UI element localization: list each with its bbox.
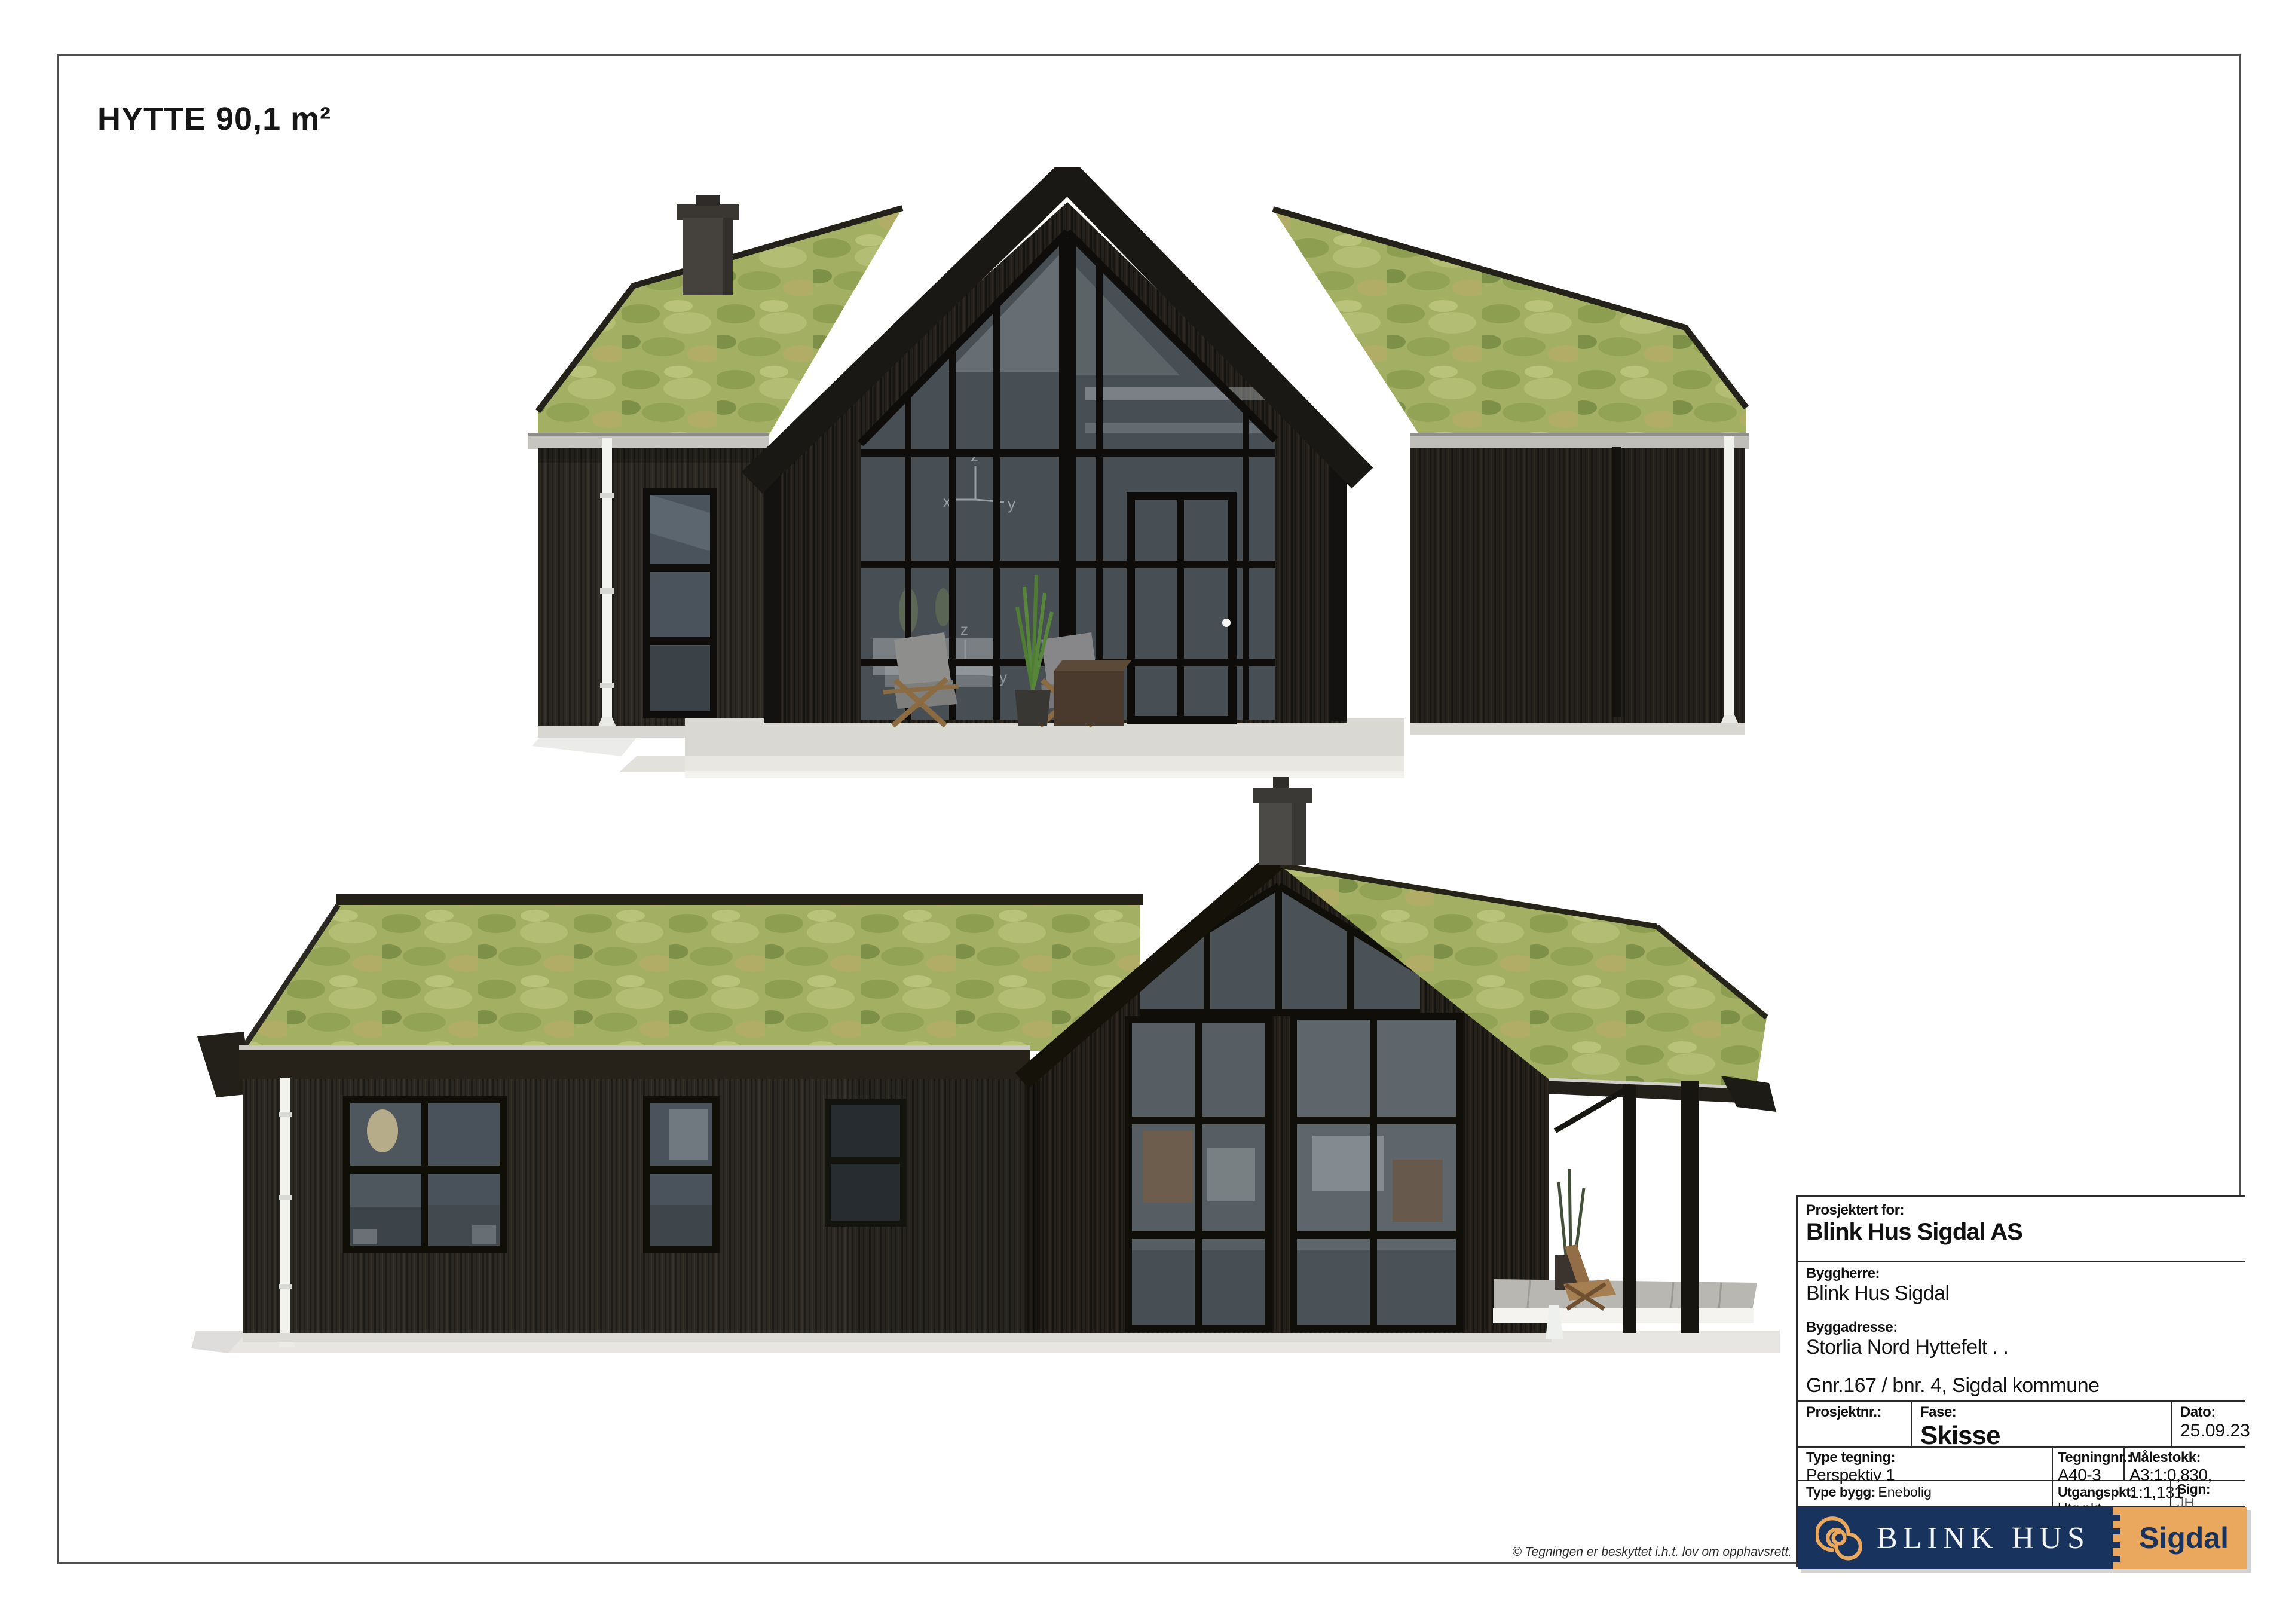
dark-window [825,1099,906,1227]
phase-value: Skisse [1920,1421,2000,1450]
knee-brace [1555,1090,1624,1131]
logo-strip: BLINK HUS Sigdal [1798,1507,2247,1569]
gable-corner-post-right [1330,465,1347,721]
logo-brand-text: BLINK HUS [1877,1521,2090,1556]
chimney [677,195,739,295]
gutter [239,1045,1030,1050]
titleblock-row-drawing-info: Type tegning: Perspektiv 1 Tegningnr.: A… [1798,1448,2245,1481]
drawing-type-cell: Type tegning: Perspektiv 1 [1798,1448,2053,1480]
property-id-value: Gnr.167 / bnr. 4, Sigdal kommune [1806,1374,2100,1397]
titleblock-row-client-address: Byggherre: Blink Hus Sigdal Byggadresse:… [1798,1262,2245,1402]
drawing-no-label: Tegningnr.: [2058,1449,2123,1466]
eave-shadow [538,448,767,463]
title-block: Prosjektert for: Blink Hus Sigdal AS Byg… [1796,1195,2245,1567]
titleblock-row-projected-for: Prosjektert for: Blink Hus Sigdal AS [1798,1197,2245,1262]
projected-for-value: Blink Hus Sigdal AS [1806,1219,2022,1245]
door-handle [1222,619,1231,627]
origin-label: Utgangspkt: [2058,1484,2135,1500]
render-front-perspective: z x y z x y [526,167,1757,783]
right-fascia [1410,436,1749,449]
fascia-lip [1410,433,1749,436]
projected-for-label: Prosjektert for: [1806,1202,2245,1219]
date-value: 25.09.23 [2180,1421,2250,1441]
left-wing-window [643,488,717,718]
titleblock-row-phase-date: Prosjektnr.: Fase: Skisse Dato: 25.09.23 [1798,1402,2245,1448]
left-fascia [528,436,769,449]
axis-y-label: y [1008,495,1015,513]
project-no-cell: Prosjektnr.: [1798,1402,1912,1446]
left-wing-grass-roof [241,904,1140,1051]
foundation-strip [243,1333,1552,1342]
drawing-no-cell: Tegningnr.: A40-3 [2053,1448,2125,1480]
double-window [343,1096,507,1253]
ridge-cap [336,894,1143,905]
drawing-sheet: HYTTE 90,1 m² [0,0,2295,1624]
terrace-crate [1054,660,1132,726]
porch-post-2 [1681,1081,1699,1333]
date-label: Dato: [2180,1404,2247,1421]
chimney [1253,777,1312,865]
fascia-lip [528,433,769,436]
wall-shade [1410,448,1745,724]
logo-divider [2113,1507,2120,1569]
drawing-type-label: Type tegning: [1806,1449,2052,1466]
spiral-logo-icon [1816,1515,1862,1561]
building-type-cell: Type bygg: Enebolig [1798,1481,2053,1506]
titleblock-row-building-type: Type bygg: Enebolig Utgangspkt: Utg.pkt.… [1798,1481,2245,1507]
deck [538,718,1745,778]
gable-window-right-pair [1290,1013,1463,1332]
scale-label: Målestokk: [2129,1449,2247,1466]
building-type-value: Enebolig [1878,1484,1932,1500]
sign-cell: Sign: JH [2171,1481,2247,1506]
site-address-label: Byggadresse: [1806,1319,2008,1336]
logo-region-box: Sigdal [2120,1507,2247,1569]
building-type-label: Type bygg: [1806,1484,1875,1500]
logo-blink-hus: BLINK HUS [1798,1507,2113,1569]
copyright-notice: © Tegningen er beskyttet i.h.t. lov om o… [1506,1545,1792,1559]
eave-fascia [239,1050,1030,1079]
porch-post-1 [1623,1085,1636,1333]
render-side-perspective [191,777,1829,1369]
phase-cell: Fase: Skisse [1912,1402,2172,1446]
porch-post-slender [1612,447,1621,717]
phase-label: Fase: [1920,1404,2171,1421]
gable-corner-post-left [764,467,781,723]
sign-label: Sign: [2177,1482,2247,1496]
client-label: Byggherre: [1806,1265,1950,1282]
project-no-label: Prosjektnr.: [1806,1404,1911,1421]
scale-cell: Målestokk: A3:1:0,830, 1:1,131 [2125,1448,2247,1480]
logo-region-text: Sigdal [2139,1521,2229,1555]
axis-y-label: y [999,668,1007,686]
site-address-value: Storlia Nord Hyttefelt . . [1806,1336,2008,1359]
page-title: HYTTE 90,1 m² [97,100,331,137]
date-cell: Dato: 25.09.23 [2172,1402,2247,1446]
single-window [643,1096,720,1253]
origin-cell: Utgangspkt: Utg.pkt. [2053,1481,2171,1506]
inner-corner-shadow [1025,1079,1041,1333]
gable-window-left-pair [1125,1016,1272,1332]
client-value: Blink Hus Sigdal [1806,1282,1950,1305]
axis-z-label: z [960,620,968,638]
